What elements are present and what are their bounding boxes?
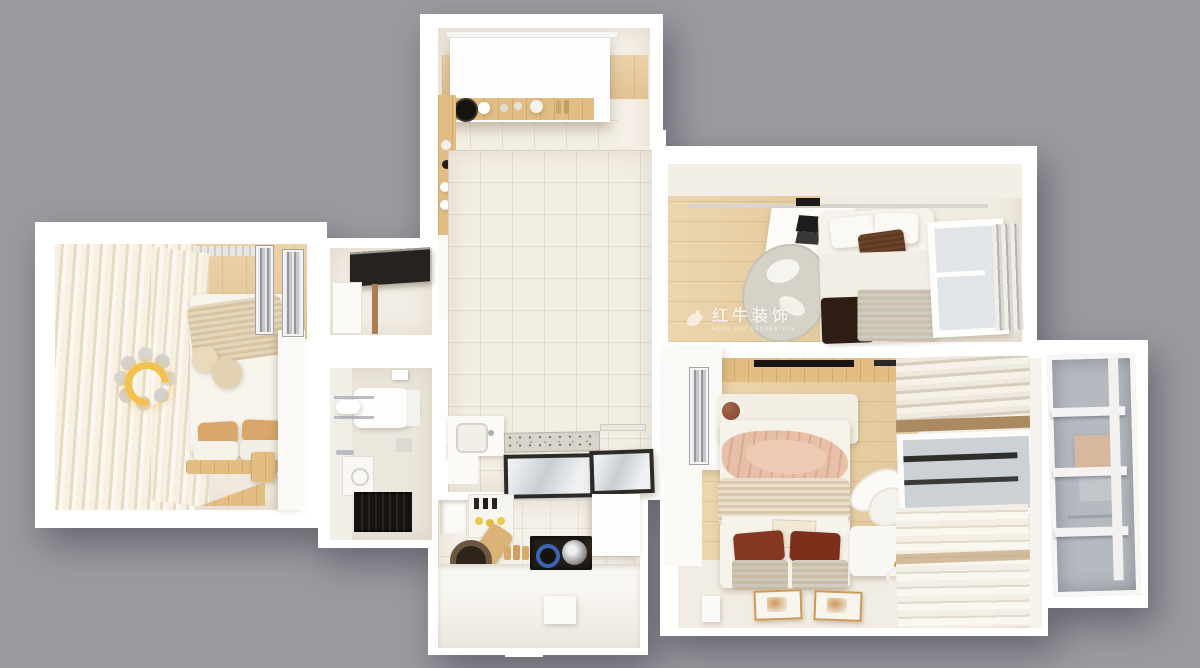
mirror-panel xyxy=(256,246,273,334)
glass-cup xyxy=(500,104,508,112)
wardrobe-mirror xyxy=(690,368,708,464)
lemon xyxy=(475,517,483,525)
nightstand xyxy=(702,596,720,622)
shower-mat xyxy=(354,492,412,532)
lemon xyxy=(497,517,505,525)
basin-side-cabinet xyxy=(448,456,478,484)
towel-shelf xyxy=(334,416,374,419)
cushion-gray xyxy=(732,560,788,590)
floorplan-render: 红牛装饰 HONG NIU DECORATION xyxy=(0,0,1200,668)
room-bedroom-left xyxy=(55,244,305,510)
kettle xyxy=(530,100,543,113)
bottle-dark xyxy=(483,498,488,509)
room-hallway xyxy=(448,150,652,492)
glass-floor-panel xyxy=(589,449,654,495)
vertical-blinds xyxy=(992,224,1024,331)
bed xyxy=(720,420,850,588)
towel-roll xyxy=(336,400,360,414)
cooktop-niche xyxy=(530,536,592,570)
bottle xyxy=(556,100,561,114)
pillow-white xyxy=(194,441,238,461)
round-cushion xyxy=(212,358,242,388)
floor-frame xyxy=(753,589,802,621)
basin-faucet xyxy=(488,430,494,436)
range-hood xyxy=(350,247,430,287)
toilet-tank xyxy=(406,390,420,426)
wood-strip xyxy=(372,284,378,334)
storage-box-tan xyxy=(1074,434,1115,469)
decor-ball xyxy=(722,402,740,420)
washer-door xyxy=(351,468,369,486)
bread xyxy=(522,546,529,560)
room-hob xyxy=(330,248,432,335)
floor-frame xyxy=(813,590,862,622)
mirror-panel xyxy=(283,250,303,336)
sheer-curtain-edge xyxy=(1030,358,1042,628)
burner-blue xyxy=(536,544,560,568)
laptop-keyboard xyxy=(795,231,820,245)
bottle-dark xyxy=(474,498,479,509)
room-balcony xyxy=(1047,353,1141,597)
window-bar xyxy=(904,476,1018,485)
room-kitchen xyxy=(438,500,640,648)
door-panel xyxy=(332,282,362,334)
open-shelf-box xyxy=(440,500,466,534)
nightstand xyxy=(251,452,275,482)
top-wall xyxy=(668,164,1022,198)
coffee-machine xyxy=(454,98,478,122)
bed xyxy=(190,294,290,490)
track-light-fixture xyxy=(796,198,820,206)
ceiling-track xyxy=(754,360,854,367)
window-mullion xyxy=(937,270,985,278)
fridge-cabinet xyxy=(592,494,640,556)
door-mat xyxy=(504,431,600,453)
wash-basin-block xyxy=(448,416,504,456)
stool xyxy=(544,596,576,624)
glass-cup xyxy=(514,102,522,110)
watermark-subtext: HONG NIU DECORATION xyxy=(712,326,795,332)
chair-cushion xyxy=(763,255,802,287)
canopy-rail xyxy=(446,31,618,38)
throw-gray xyxy=(857,289,937,341)
drapes-lower xyxy=(896,504,1030,628)
bull-icon xyxy=(682,307,706,331)
watermark-text: 红牛装饰 xyxy=(712,302,847,326)
bottle-dark xyxy=(492,498,497,509)
pillow-rust xyxy=(733,530,785,564)
bread xyxy=(513,545,520,560)
lower-left-wall xyxy=(664,470,702,566)
glass-floor-panel xyxy=(504,453,595,499)
toilet-paper-holder xyxy=(392,370,408,380)
shelf-stroke xyxy=(1068,514,1116,518)
pot xyxy=(441,140,451,150)
bottle xyxy=(564,100,569,114)
cushion-gray xyxy=(792,560,848,590)
towel-rail xyxy=(600,424,646,431)
room-bedroom-top-right: 红牛装饰 HONG NIU DECORATION xyxy=(668,164,1022,342)
window-bar xyxy=(903,452,1017,462)
towel-shelf xyxy=(334,396,374,399)
basin-bowl xyxy=(456,423,488,453)
watermark: 红牛装饰 HONG NIU DECORATION xyxy=(682,302,847,335)
faucet xyxy=(336,450,354,455)
wardrobe xyxy=(278,330,305,510)
island-counter xyxy=(438,564,640,648)
washer xyxy=(342,456,374,496)
bread xyxy=(504,546,511,560)
pillow-rust xyxy=(789,531,841,564)
wok xyxy=(562,540,587,565)
window-drape-band xyxy=(896,356,1030,628)
room-bathroom xyxy=(330,368,432,540)
wall-box xyxy=(396,438,412,452)
room-bedroom-master xyxy=(678,358,1042,628)
coffee-cup xyxy=(478,102,490,114)
